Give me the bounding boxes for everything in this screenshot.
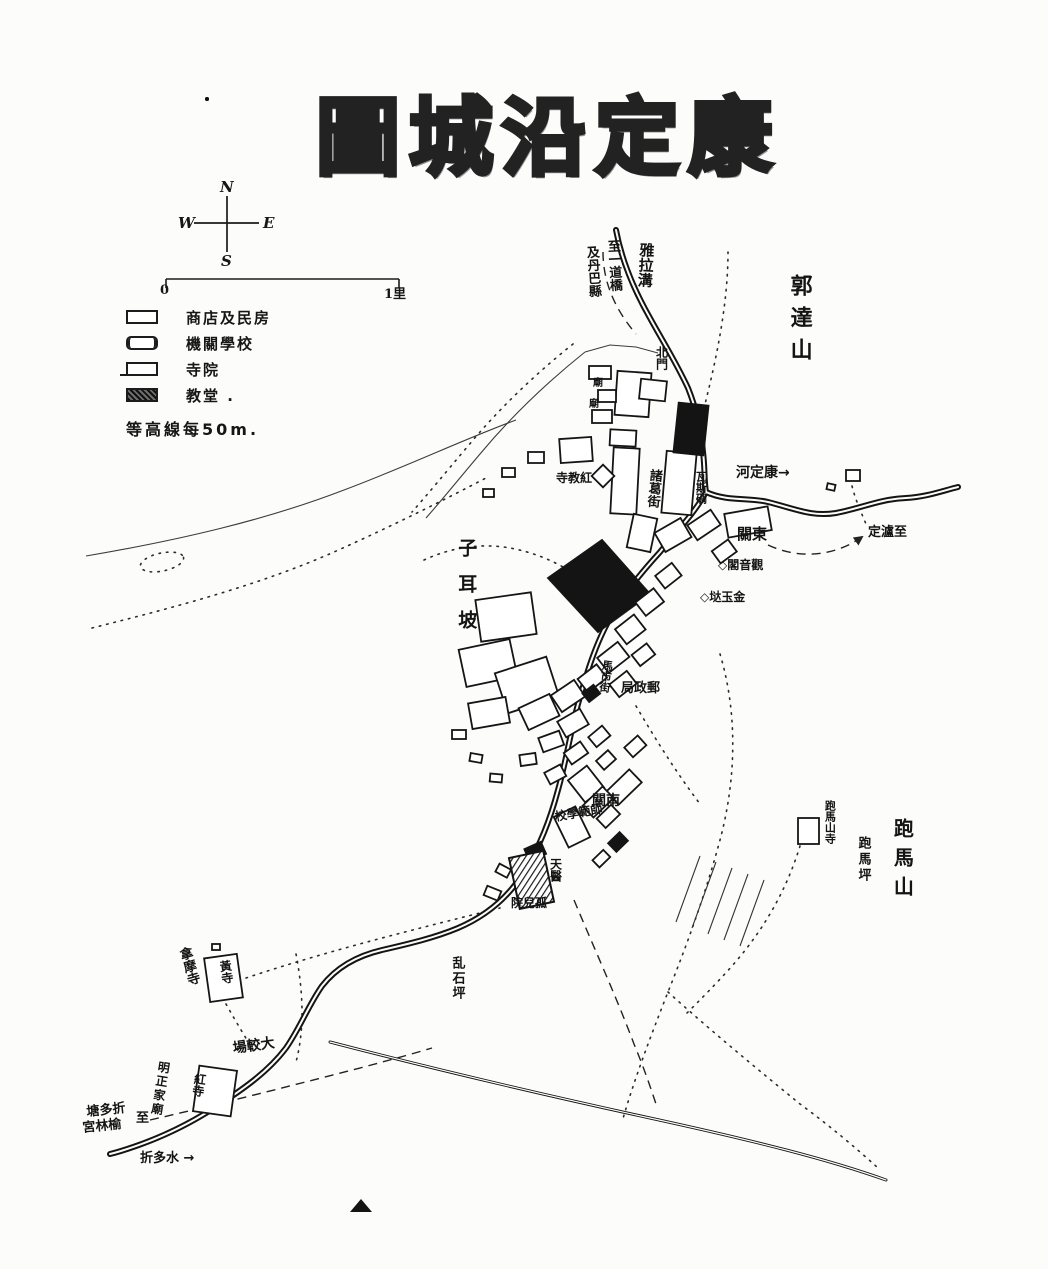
map-label-gas-blockhouse: 瓦斯碉 <box>694 471 706 504</box>
map-label-paoma-ping: 跑馬坪 <box>855 836 870 884</box>
map-label-red-sect-temple: 寺教紅 <box>556 472 592 485</box>
map-label-luanshiping: 乱石坪 <box>449 956 464 1001</box>
map-label-red-temple: 紅寺 <box>190 1072 207 1098</box>
map-labels-layer: 雅拉溝至一道橋及丹巴縣郭達山北門廟廟諸葛街瓦斯碉寺教紅河定康→定瀘至關東◇閣音觀… <box>0 0 1048 1269</box>
map-label-yulin-palace: 宮林榆 <box>82 1118 122 1137</box>
map-label-east-gate: 關東 <box>737 526 767 543</box>
map-label-paoma-temple: 跑馬山寺 <box>823 800 835 844</box>
stray-dot <box>205 97 209 101</box>
map-label-to-luding: 定瀘至 <box>868 526 907 541</box>
map-label-mingzheng-family-temple: 明正家廟 <box>148 1060 170 1117</box>
map-label-zhuge-street: 諸葛街 <box>644 468 662 508</box>
map-label-horse-market-street: 馬市街 <box>597 659 613 693</box>
map-label-temple-mark-2: 廟 <box>589 399 599 410</box>
map-label-to-danba-county: 及丹巴縣 <box>583 245 600 298</box>
map-label-to-yidao-bridge: 至一道橋 <box>604 239 621 292</box>
map-label-to-zheduotang-zhi: 至 <box>136 1112 149 1127</box>
map-label-orphanage: 院兒孤 <box>511 897 547 910</box>
map-label-catholic-hospital: 天醫 <box>548 858 561 882</box>
map-label-kangding-river: 河定康→ <box>736 466 790 482</box>
map-label-guoda-mountain: 郭達山 <box>786 274 811 370</box>
map-canvas: 圖城沿定康 N E S W 0 1里 商店及民房 機關學校 寺院 教堂 . 等高… <box>0 0 1048 1269</box>
map-label-yellow-temple: 黃寺 <box>217 959 234 985</box>
map-label-paoma-mountain: 跑馬山 <box>891 818 913 905</box>
map-label-jinyu-da: ◇垯玉金 <box>700 591 745 604</box>
map-label-post-office: 局政郵 <box>621 682 660 697</box>
map-label-guanyin-pavilion: ◇閣音觀 <box>718 559 763 572</box>
map-label-temple-mark-1: 廟 <box>593 378 603 389</box>
map-label-north-gate: 北門 <box>654 346 667 370</box>
map-label-zier-slope: 子耳坡 <box>455 538 476 646</box>
map-label-parade-ground: 場較大 <box>232 1036 276 1057</box>
map-label-yala-gou: 雅拉溝 <box>636 242 655 288</box>
map-label-normal-school: 校學範師 <box>554 803 604 825</box>
map-label-zheduo-river: 折多水 → <box>140 1152 194 1167</box>
map-label-namo-temple: 拿摩寺 <box>175 946 200 987</box>
